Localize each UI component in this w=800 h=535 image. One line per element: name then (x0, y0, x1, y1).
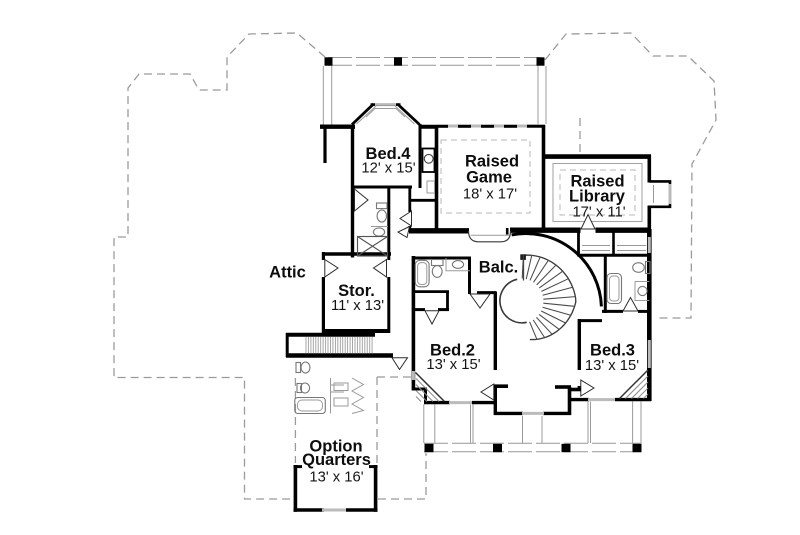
svg-text:17' x 11': 17' x 11' (572, 205, 625, 221)
svg-text:12' x 15': 12' x 15' (361, 161, 415, 177)
svg-text:Balc.: Balc. (479, 259, 518, 277)
svg-text:13' x 16': 13' x 16' (309, 470, 363, 486)
svg-text:18' x 17': 18' x 17' (463, 187, 517, 203)
svg-text:Quarters: Quarters (302, 451, 371, 469)
svg-text:Game: Game (466, 169, 512, 187)
svg-text:13' x 15': 13' x 15' (585, 358, 639, 374)
svg-text:Bed.3: Bed.3 (590, 342, 635, 360)
svg-text:Library: Library (569, 188, 626, 206)
svg-text:13' x 15': 13' x 15' (426, 357, 480, 373)
svg-text:Attic: Attic (269, 264, 306, 282)
svg-text:11' x 13': 11' x 13' (331, 298, 384, 314)
